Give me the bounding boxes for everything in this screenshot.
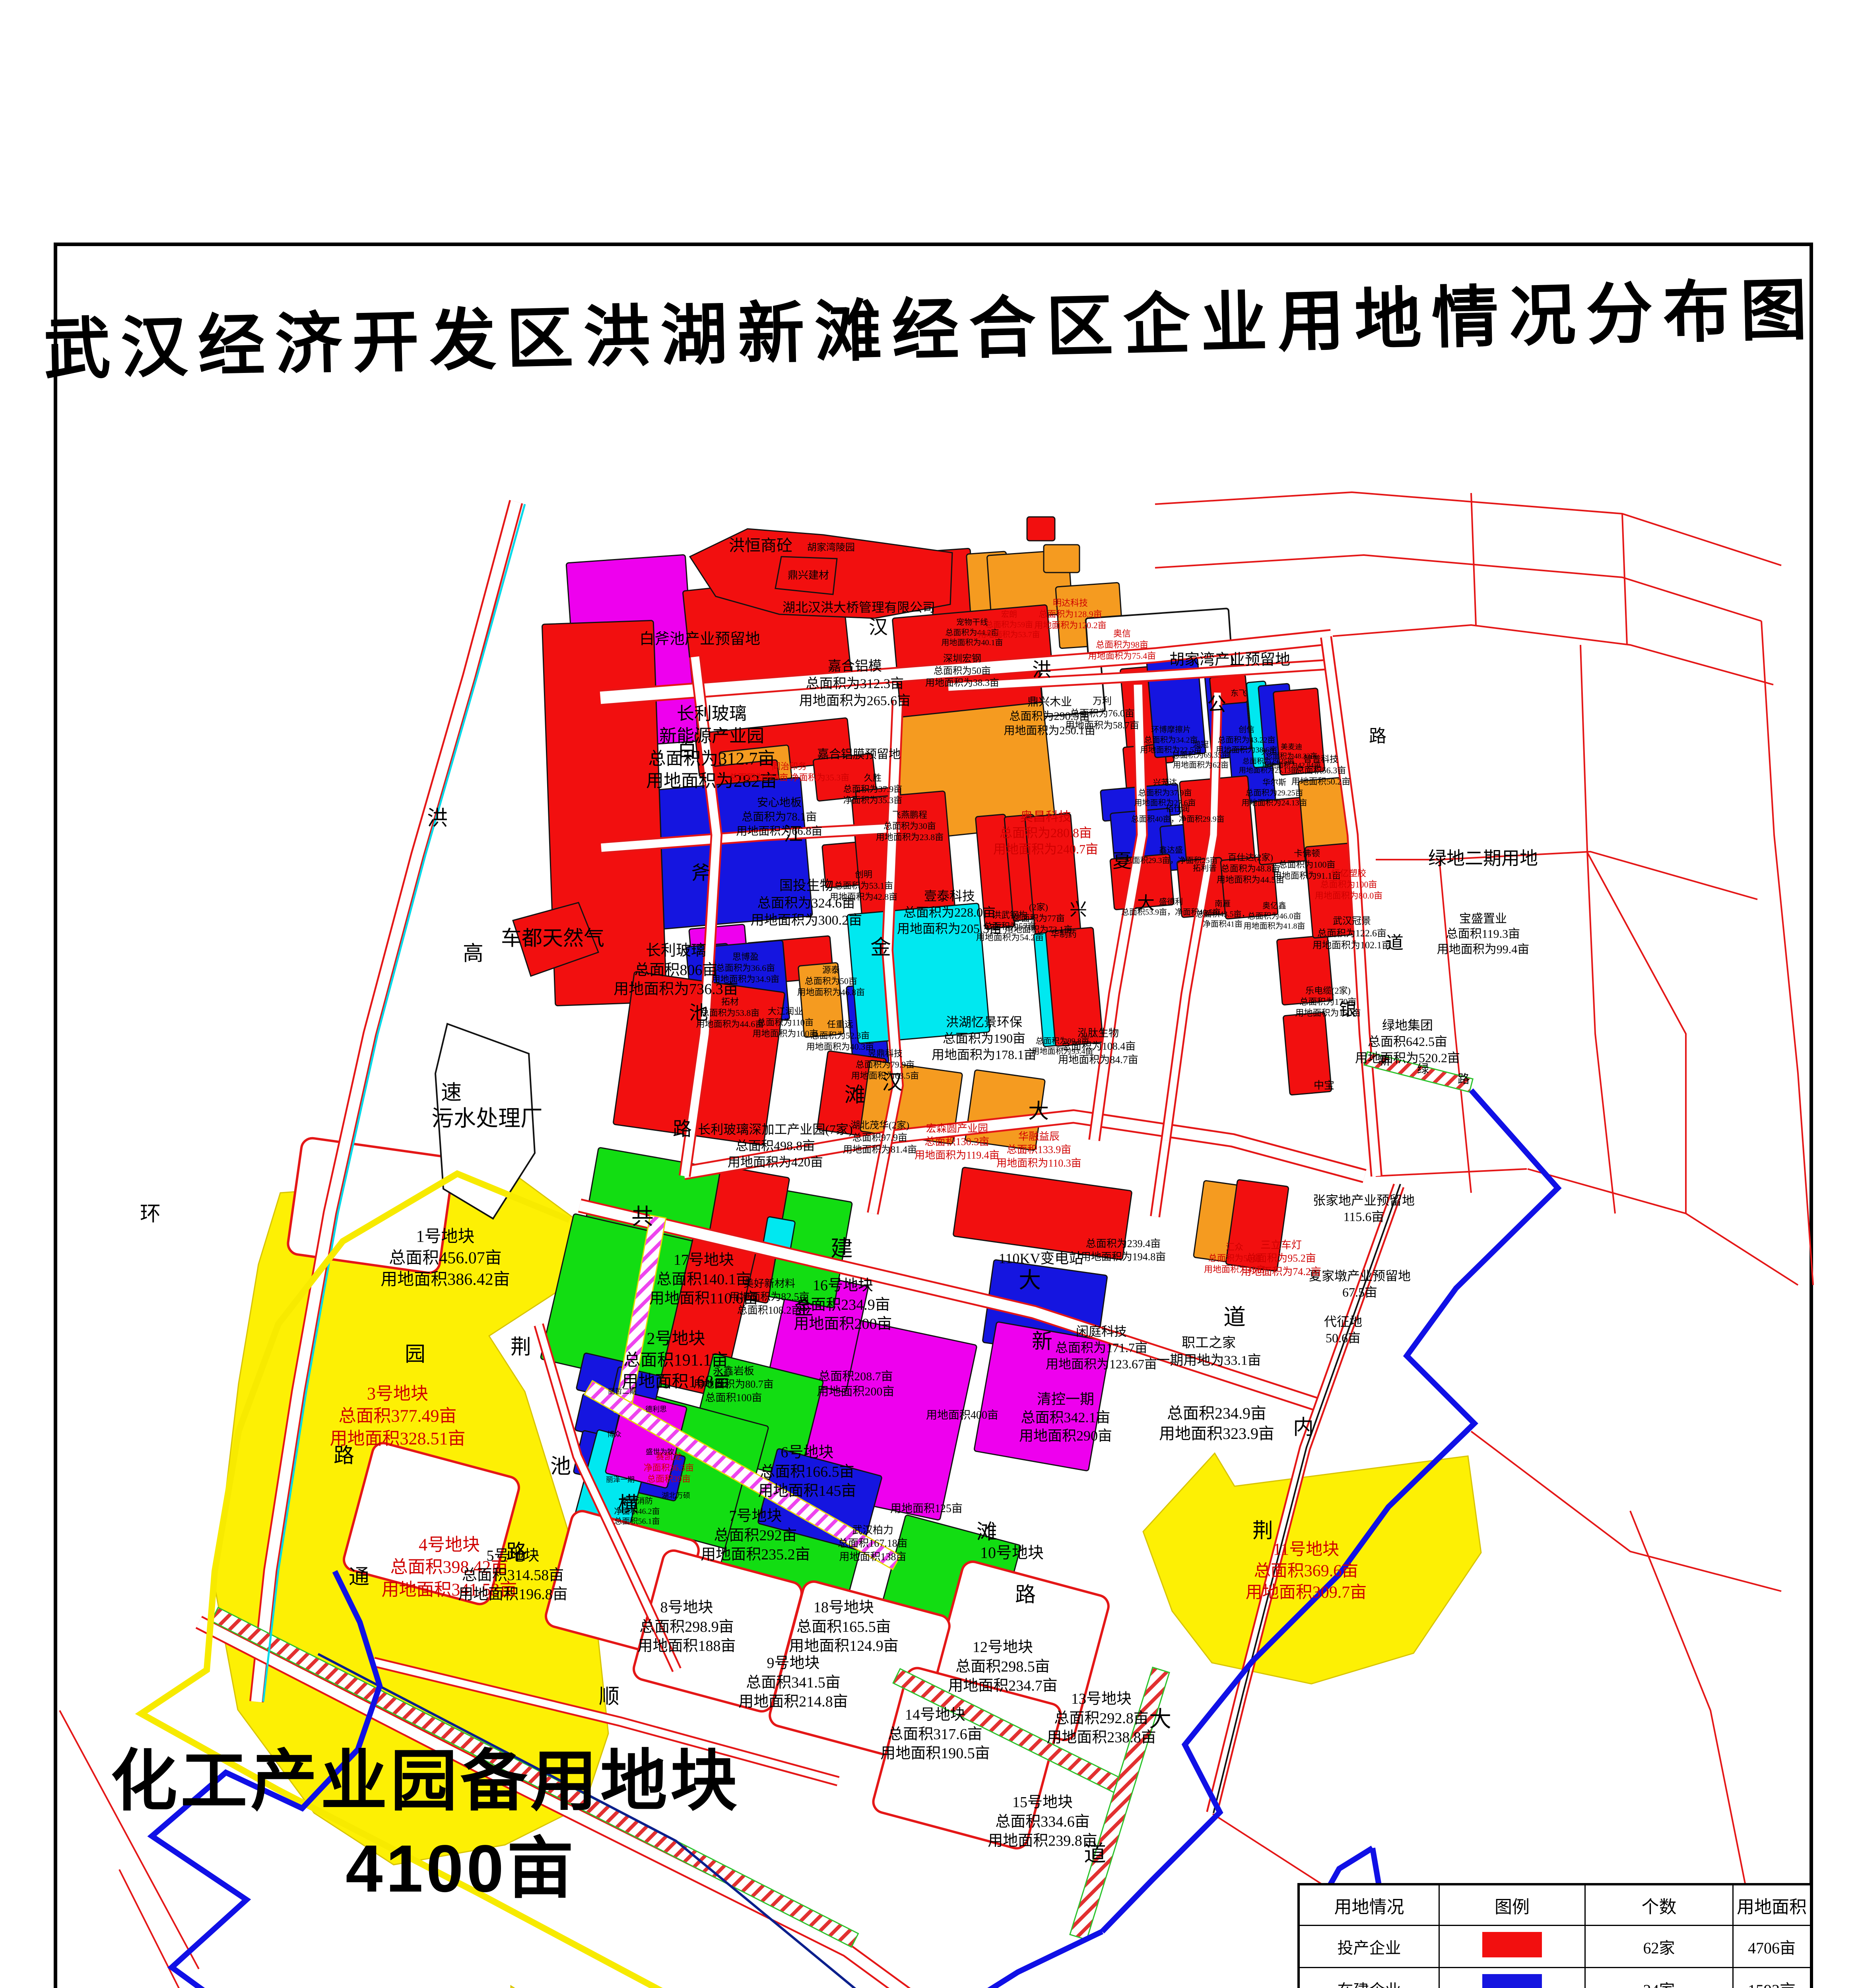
legend-row: 投产企业 62家 4706亩 (1299, 1926, 1811, 1968)
parcel (1044, 545, 1079, 573)
plot-11-area (1143, 1453, 1481, 1684)
parcel-dingxing-jiancai (775, 557, 837, 594)
parcel (1283, 1012, 1332, 1095)
legend-row-count: 62家 (1585, 1926, 1733, 1968)
legend-header-count: 个数 (1585, 1884, 1733, 1926)
reserve-area-text-line1: 化工产业园备用地块 (111, 1738, 740, 1824)
parcel (852, 791, 955, 917)
legend-row-label: 投产企业 (1299, 1926, 1439, 1968)
road-with-quota-hatch (1364, 1052, 1473, 1092)
parcel (798, 963, 844, 1037)
legend-header-land-use: 用地情况 (1299, 1884, 1439, 1926)
parcel (847, 903, 990, 1044)
legend-row-area: 4706亩 (1733, 1926, 1811, 1968)
legend-table: 用地情况 图例 个数 用地面积 投产企业 62家 4706亩 在建企业 24家 … (1297, 1883, 1812, 1988)
reserve-area-text-line2: 4100亩 (346, 1826, 577, 1911)
legend-row-swatch-cell (1439, 1926, 1585, 1968)
legend-swatch (1482, 1974, 1542, 1988)
parcel (1221, 856, 1278, 919)
legend-header-symbol: 图例 (1439, 1884, 1585, 1926)
legend-row-swatch-cell (1439, 1968, 1585, 1988)
parcel (1277, 935, 1333, 1005)
parcel (965, 1070, 1045, 1150)
parcel (1025, 813, 1081, 936)
parcel (953, 1167, 1132, 1260)
legend-row-label: 在建企业 (1299, 1968, 1439, 1988)
legend-row: 在建企业 24家 1593亩 (1299, 1968, 1811, 1988)
reserve-triangle (511, 1986, 814, 1988)
legend-row-area: 1593亩 (1733, 1968, 1811, 1988)
legend-row-count: 24家 (1585, 1968, 1733, 1988)
legend-body: 投产企业 62家 4706亩 在建企业 24家 1593亩 待盘活企业 11家 … (1299, 1926, 1811, 1988)
legend-header-row: 用地情况 图例 个数 用地面积 (1299, 1884, 1811, 1926)
parcel (287, 1137, 454, 1274)
parcel (1027, 517, 1055, 541)
parcel (1226, 1180, 1289, 1272)
road-with-quota-hatch (1070, 1667, 1169, 1939)
legend-swatch (1482, 1932, 1542, 1957)
page: 洪恒商砼胡家湾陵园湖北汉洪大桥管理有限公司白斧池产业预留地胡家湾产业预留地车都天… (0, 0, 1860, 1988)
legend-header-area: 用地面积 (1733, 1884, 1811, 1926)
parcel (1046, 927, 1103, 1046)
parcel (974, 1322, 1111, 1471)
parcel (1273, 688, 1325, 775)
